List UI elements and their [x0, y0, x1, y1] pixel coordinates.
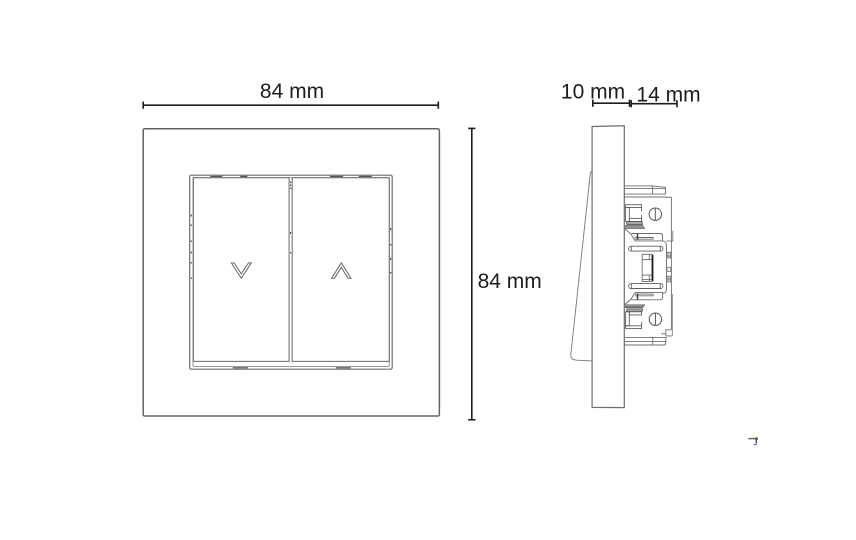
svg-text:84 mm: 84 mm: [260, 80, 324, 103]
svg-text:84 mm: 84 mm: [478, 270, 542, 293]
